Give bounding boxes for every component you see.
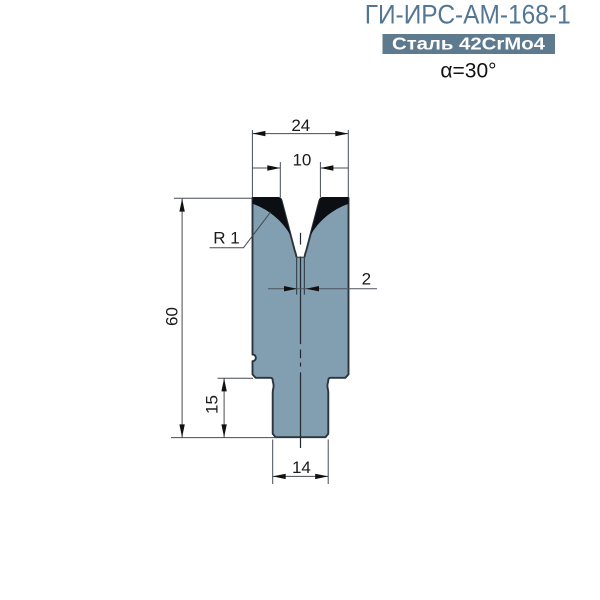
svg-text:14: 14 (292, 458, 311, 477)
svg-text:24: 24 (291, 116, 310, 135)
svg-text:15: 15 (203, 395, 222, 414)
svg-text:Сталь 42CrMo4: Сталь 42CrMo4 (392, 33, 545, 53)
svg-text:R 1: R 1 (213, 229, 239, 248)
svg-text:2: 2 (362, 270, 371, 289)
svg-text:α=30°: α=30° (440, 60, 496, 83)
svg-text:10: 10 (292, 151, 311, 170)
svg-text:ГИ-ИРС-АМ-168-1: ГИ-ИРС-АМ-168-1 (365, 0, 571, 29)
svg-text:60: 60 (163, 307, 182, 326)
